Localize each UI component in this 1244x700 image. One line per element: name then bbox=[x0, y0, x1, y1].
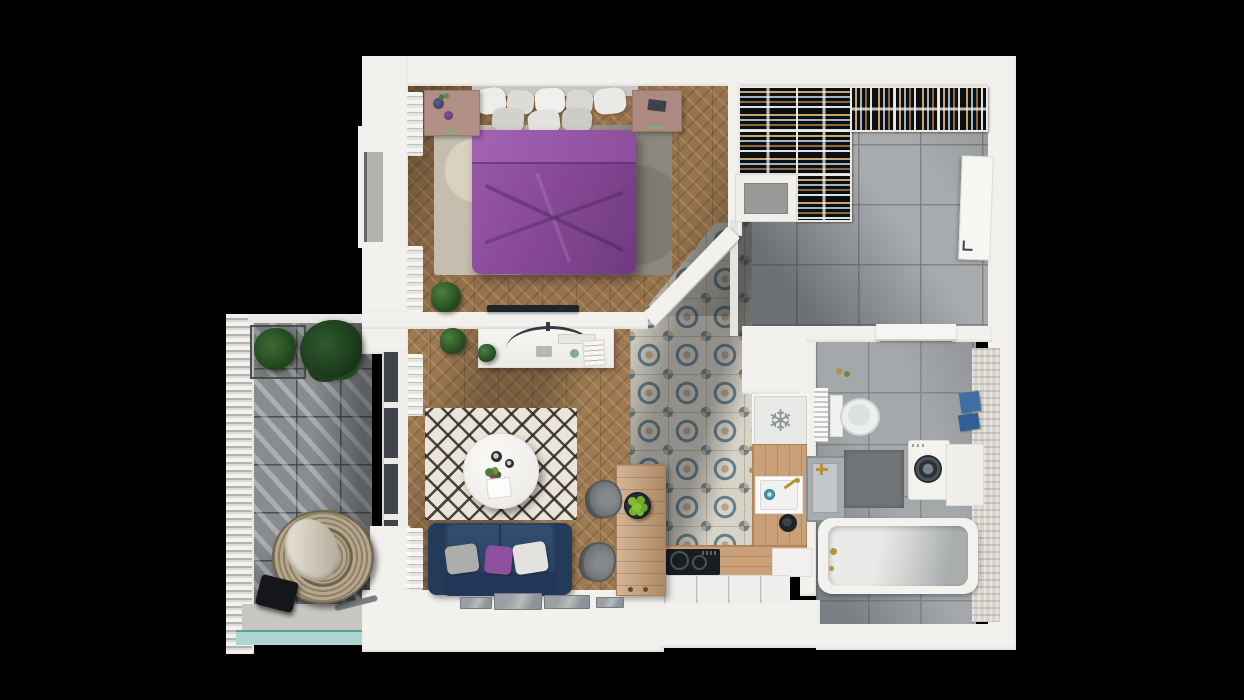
gold-knob bbox=[749, 468, 754, 473]
wall-bottom-kitchen bbox=[660, 600, 820, 648]
curtain bbox=[407, 528, 423, 590]
nightstand-accent bbox=[650, 126, 662, 129]
sink-drain bbox=[764, 489, 775, 500]
window-pane bbox=[460, 597, 492, 609]
bathtub-basin bbox=[828, 526, 968, 586]
bedroom-window-pane bbox=[364, 152, 383, 242]
green-apples bbox=[627, 495, 648, 516]
gold-faucet-base bbox=[795, 478, 800, 483]
wardrobe-unit bbox=[894, 86, 940, 132]
island-knob bbox=[628, 587, 633, 592]
window-pane bbox=[596, 597, 624, 608]
candle bbox=[505, 459, 514, 468]
vase bbox=[444, 111, 453, 120]
candle bbox=[491, 451, 502, 462]
gold-tap bbox=[820, 463, 823, 475]
burner bbox=[692, 555, 707, 570]
wall-bottom-bathroom bbox=[816, 624, 1016, 650]
double-bed-purple-duvet bbox=[472, 130, 636, 274]
wardrobe-unit bbox=[938, 86, 988, 132]
square-vase bbox=[486, 477, 512, 499]
cooktop-controls bbox=[702, 551, 718, 555]
wardrobe-unit bbox=[796, 174, 852, 222]
wall-left-living-bottom bbox=[370, 526, 410, 592]
nightstand-accent bbox=[446, 131, 458, 134]
wardrobe-unit bbox=[738, 86, 798, 132]
tub-gold-tap bbox=[829, 566, 834, 571]
washer-controls bbox=[912, 444, 926, 447]
desk-plant-pot bbox=[570, 349, 579, 358]
wall-bathroom-top-left bbox=[806, 326, 880, 342]
blue-towel bbox=[958, 413, 980, 432]
plant-sprig bbox=[438, 92, 450, 102]
black-pot bbox=[779, 514, 797, 532]
toilet-seat bbox=[848, 404, 870, 426]
wall-bedroom-living bbox=[362, 312, 648, 329]
doormat bbox=[744, 183, 788, 214]
kitchen-corner-cabinet bbox=[772, 548, 812, 577]
towel-radiator bbox=[814, 388, 828, 442]
kitchen-cabinet-front bbox=[664, 575, 790, 603]
gold-knob bbox=[749, 446, 754, 451]
toiletry-bottle bbox=[836, 368, 842, 374]
apartment-floorplan-render: ❄ bbox=[0, 0, 1244, 700]
monitor-stand bbox=[546, 322, 550, 331]
throw-cushion-grey bbox=[444, 543, 480, 575]
island-knob bbox=[643, 587, 648, 592]
tub-gold-tap bbox=[830, 548, 837, 555]
balcony-door-frame bbox=[398, 352, 408, 526]
wardrobe-unit bbox=[796, 130, 852, 176]
washer-porthole bbox=[914, 455, 942, 483]
wall-top bbox=[362, 56, 992, 86]
wardrobe-unit bbox=[738, 130, 798, 176]
bath-mat bbox=[844, 450, 904, 508]
open-book bbox=[582, 339, 606, 366]
entrance-door bbox=[958, 155, 994, 260]
curtain bbox=[407, 354, 423, 416]
wall-kitchen-top bbox=[742, 326, 808, 394]
curtain bbox=[407, 246, 423, 312]
wardrobe-unit bbox=[850, 86, 896, 132]
bathroom-counter bbox=[946, 444, 984, 506]
bathroom-door bbox=[876, 324, 956, 341]
bar-island bbox=[616, 464, 666, 596]
mouse-pad bbox=[536, 346, 552, 357]
glass-balustrade bbox=[236, 630, 372, 645]
throw-cushion-white bbox=[512, 541, 549, 576]
curtain bbox=[407, 92, 423, 156]
burner bbox=[670, 551, 689, 570]
wall-bathroom-top-right bbox=[952, 326, 992, 342]
wall-left-living-top bbox=[362, 329, 408, 354]
blue-towel bbox=[959, 391, 982, 414]
balcony-top-rail bbox=[248, 314, 372, 323]
toiletry-bottle bbox=[844, 371, 850, 377]
window-pane bbox=[494, 593, 542, 610]
notebook bbox=[647, 99, 666, 112]
throw-cushion-purple bbox=[484, 545, 513, 575]
balcony-fiddle-leaf-plant bbox=[300, 320, 362, 378]
wardrobe-unit bbox=[796, 86, 852, 132]
tv-screen bbox=[487, 305, 579, 312]
bed-pillow bbox=[593, 86, 628, 115]
window-pane bbox=[544, 595, 590, 609]
snowflake-icon: ❄ bbox=[752, 394, 809, 448]
